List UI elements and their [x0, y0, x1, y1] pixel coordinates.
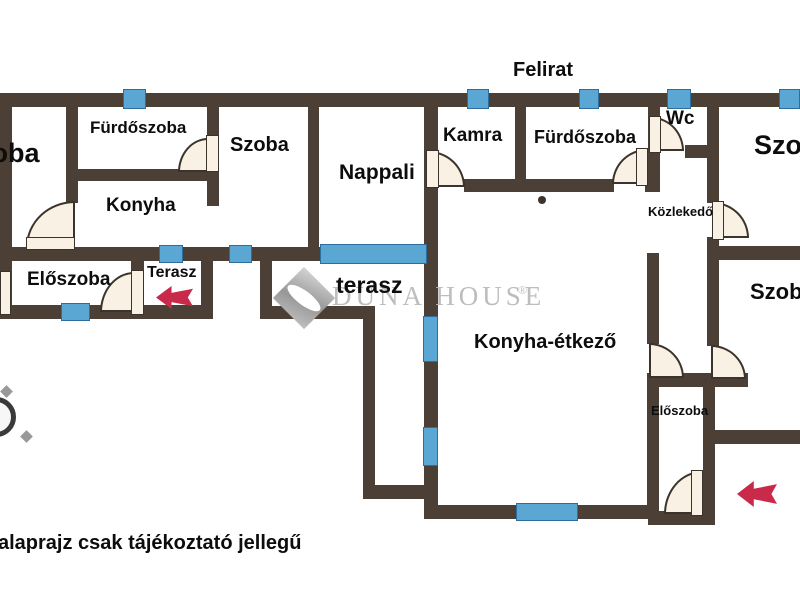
wall — [424, 466, 438, 519]
wall — [425, 505, 516, 519]
wall — [647, 377, 659, 512]
door-leaf — [712, 201, 724, 240]
wall — [703, 379, 715, 525]
door-leaf — [131, 270, 144, 315]
window — [779, 89, 800, 109]
window — [61, 303, 90, 321]
window — [123, 89, 146, 109]
watermark-logo-swoosh — [284, 280, 324, 315]
room-label-furdoszoba-1: Fürdőszoba — [90, 119, 186, 138]
door-leaf — [0, 271, 11, 315]
wall — [578, 505, 650, 519]
compass-ring — [0, 397, 16, 437]
room-label-szoba-3: Szoba — [754, 131, 800, 161]
window — [320, 244, 427, 264]
wall — [464, 179, 614, 192]
wall — [201, 247, 213, 319]
room-label-eloszoba-1: Előszoba — [27, 270, 110, 291]
window — [159, 245, 183, 263]
wall — [267, 247, 325, 261]
door-leaf — [426, 150, 439, 188]
wall — [647, 253, 659, 344]
room-label-eloszoba-2: Előszoba — [651, 404, 708, 418]
door-leaf — [206, 135, 219, 172]
room-label-furdoszoba-2: Fürdőszoba — [534, 128, 636, 148]
watermark-reg-mark: ® — [518, 283, 527, 298]
wall — [66, 100, 78, 203]
watermark-logo-icon — [273, 267, 335, 329]
room-label-konyha: Konyha — [106, 196, 176, 217]
room-label-nappali: Nappali — [339, 161, 415, 184]
room-label-terasz-big: terasz — [336, 273, 402, 298]
window — [423, 316, 438, 362]
door-leaf — [636, 148, 648, 186]
door-arc — [711, 345, 746, 379]
plan-marker-dot — [538, 196, 546, 204]
wall — [207, 100, 219, 137]
room-label-konyha-etkezo: Konyha-étkező — [474, 331, 616, 353]
wall — [207, 170, 219, 206]
floor-plan: Felirat — [0, 0, 800, 600]
wall — [707, 100, 719, 203]
room-label-szoba-1: Szoba — [0, 139, 40, 169]
window — [579, 89, 599, 109]
window — [667, 89, 691, 109]
room-label-wc: Wc — [666, 109, 695, 130]
entrance-arrow-icon — [737, 481, 777, 507]
window — [516, 503, 578, 521]
door-arc — [649, 343, 684, 378]
wall — [515, 100, 526, 190]
wall — [707, 237, 719, 346]
window — [467, 89, 489, 109]
window — [423, 427, 438, 466]
wall — [707, 246, 800, 260]
room-label-szoba-4: Szoba — [750, 280, 800, 304]
wall — [308, 100, 319, 248]
wall — [260, 247, 272, 319]
door-leaf — [649, 116, 661, 153]
wall — [706, 430, 800, 444]
wall — [363, 306, 375, 499]
compass-tip — [20, 430, 33, 443]
compass-tip — [0, 385, 13, 398]
door-arc — [178, 138, 208, 172]
disclaimer-text: alaprajz csak tájékoztató jellegű — [0, 532, 301, 554]
door-leaf — [26, 237, 75, 250]
room-label-szoba-2: Szoba — [230, 134, 289, 156]
door-leaf — [691, 470, 703, 516]
room-label-kamra: Kamra — [443, 126, 502, 147]
wall — [424, 362, 438, 427]
room-label-terasz-small: Terasz — [147, 264, 197, 282]
plan-caption: Felirat — [513, 59, 573, 81]
window — [229, 245, 252, 263]
room-label-kozlekedo: Közlekedő — [648, 205, 713, 219]
